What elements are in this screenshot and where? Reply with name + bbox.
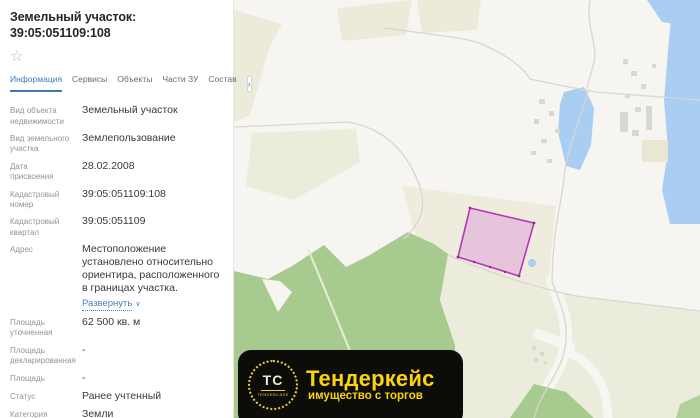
attribute-row: Площадь уточненная 62 500 кв. м bbox=[10, 316, 223, 339]
attribute-row: Площадь - bbox=[10, 372, 223, 385]
attribute-row: Категория земель Земли сельскохозяйствен… bbox=[10, 408, 223, 418]
attribute-value: Землепользование bbox=[82, 132, 223, 155]
expand-address-link[interactable]: Развернуть bbox=[82, 298, 132, 311]
address-text: Местоположение установлено относительно … bbox=[82, 243, 219, 294]
attribute-label: Вид земельного участка bbox=[10, 132, 72, 155]
attribute-value: Земельный участок bbox=[82, 104, 223, 127]
attribute-row: Кадастровый номер 39:05:051109:108 bbox=[10, 188, 223, 211]
attribute-value: - bbox=[82, 344, 223, 367]
tendercase-watermark: ТС TENDERCASE Тендеркейс имущество с тор… bbox=[238, 350, 463, 418]
attribute-label: Кадастровый квартал bbox=[10, 215, 72, 238]
attribute-label: Площадь bbox=[10, 372, 72, 385]
watermark-text: Тендеркейс имущество с торгов bbox=[306, 367, 435, 403]
attribute-row: Кадастровый квартал 39:05:051109 bbox=[10, 215, 223, 238]
attribute-row: Статус Ранее учтенный bbox=[10, 390, 223, 403]
tab-bar: Информация Сервисы Объекты Части ЗУ Сост… bbox=[0, 66, 233, 92]
tabs-scroll-right-icon[interactable]: › bbox=[247, 76, 252, 92]
attribute-list: Вид объекта недвижимости Земельный участ… bbox=[0, 92, 233, 418]
attribute-row-address: Адрес Местоположение установлено относит… bbox=[10, 243, 223, 311]
attribute-value: 39:05:051109 bbox=[82, 215, 223, 238]
attribute-label: Дата присвоения bbox=[10, 160, 72, 183]
attribute-row: Дата присвоения 28.02.2008 bbox=[10, 160, 223, 183]
cadastral-map-app: Земельный участок: 39:05:051109:108 ☆ Ин… bbox=[0, 0, 700, 418]
attribute-label: Статус bbox=[10, 390, 72, 403]
tab-parcel-parts[interactable]: Части ЗУ bbox=[162, 74, 198, 92]
attribute-value: Местоположение установлено относительно … bbox=[82, 243, 223, 311]
attribute-value: - bbox=[82, 372, 223, 385]
favorite-star-icon[interactable]: ☆ bbox=[10, 49, 23, 64]
tab-services[interactable]: Сервисы bbox=[72, 74, 107, 92]
tab-information[interactable]: Информация bbox=[10, 74, 62, 92]
chevron-down-icon[interactable]: ∨ bbox=[135, 301, 140, 308]
attribute-row: Вид объекта недвижимости Земельный участ… bbox=[10, 104, 223, 127]
watermark-subtitle: имущество с торгов bbox=[308, 390, 423, 403]
attribute-value: 28.02.2008 bbox=[82, 160, 223, 183]
attribute-value: Земли сельскохозяйственного назначения bbox=[82, 408, 223, 418]
map-pond bbox=[528, 259, 536, 267]
attribute-value: Ранее учтенный bbox=[82, 390, 223, 403]
tab-objects[interactable]: Объекты bbox=[117, 74, 152, 92]
logo-initials: ТС bbox=[261, 373, 286, 390]
attribute-value: 62 500 кв. м bbox=[82, 316, 223, 339]
attribute-label: Площадь декларированная bbox=[10, 344, 72, 367]
parcel-info-panel: Земельный участок: 39:05:051109:108 ☆ Ин… bbox=[0, 0, 234, 418]
page-title: Земельный участок: 39:05:051109:108 bbox=[0, 0, 233, 41]
attribute-label: Адрес bbox=[10, 243, 72, 311]
attribute-label: Кадастровый номер bbox=[10, 188, 72, 211]
tendercase-logo-icon: ТС TENDERCASE bbox=[248, 360, 298, 410]
attribute-label: Категория земель bbox=[10, 408, 72, 418]
logo-caption: TENDERCASE bbox=[257, 392, 288, 397]
watermark-title: Тендеркейс bbox=[306, 367, 435, 390]
attribute-row: Вид земельного участка Землепользование bbox=[10, 132, 223, 155]
attribute-label: Вид объекта недвижимости bbox=[10, 104, 72, 127]
attribute-label: Площадь уточненная bbox=[10, 316, 72, 339]
attribute-row: Площадь декларированная - bbox=[10, 344, 223, 367]
attribute-value: 39:05:051109:108 bbox=[82, 188, 223, 211]
tab-composition[interactable]: Состав bbox=[208, 74, 236, 92]
